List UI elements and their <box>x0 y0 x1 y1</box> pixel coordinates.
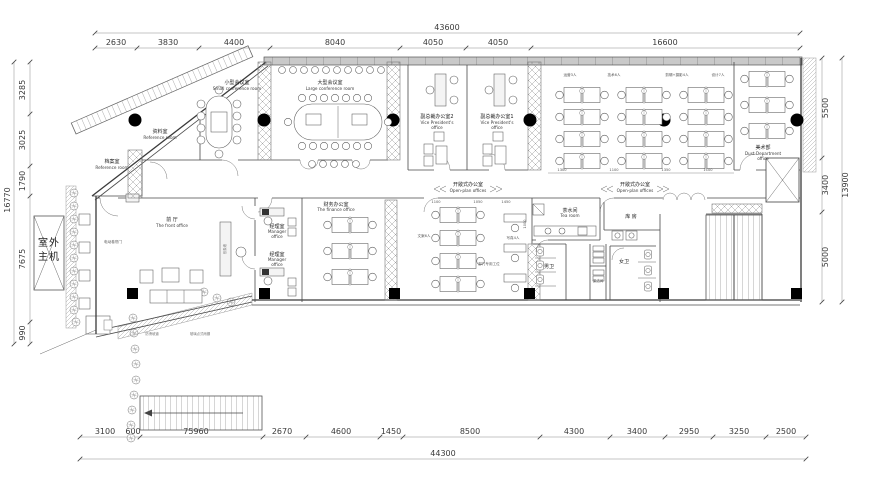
dim-left-3: 1790 <box>18 171 27 191</box>
manager1-en2: office <box>271 234 283 239</box>
dim-bottom-total: 44300 <box>430 449 455 458</box>
archive-cn: 档案室 <box>104 158 119 165</box>
outdoor-unit-label-1: 室外 <box>38 236 60 249</box>
canopy-label: 玻璃点式雨棚 <box>190 331 211 336</box>
male-wc-label: 男卫 <box>544 264 554 270</box>
dim-left-total: 16770 <box>3 187 12 212</box>
east-facade <box>803 58 816 172</box>
vp1-en2: office <box>491 125 503 130</box>
chevron-left-icon <box>434 186 446 192</box>
dim-bot-11: 3250 <box>729 427 749 436</box>
mid-team-label-1: 文案6人 <box>417 233 430 238</box>
dim-right-1: 5500 <box>821 98 830 118</box>
front-cn: 前 厅 <box>166 216 178 223</box>
dim-top-total: 43600 <box>434 23 459 32</box>
dim-top-4: 8040 <box>325 38 345 47</box>
corridor-arcs <box>663 193 705 200</box>
dim-top-5: 4050 <box>423 38 443 47</box>
open-plan-workstations <box>548 86 734 173</box>
microdim-e: 1100 <box>431 200 441 204</box>
art-cn: 美术部 <box>755 144 770 151</box>
dim-top-6: 4050 <box>488 38 508 47</box>
microdim-b: 1100 <box>609 168 619 172</box>
middle-open-desks <box>432 206 526 293</box>
finance-desks <box>324 216 377 286</box>
team-label-1: 运营3人 <box>563 72 576 77</box>
open1-cn: 开敞式办公室 <box>453 181 483 188</box>
dim-bot-5: 4600 <box>331 427 351 436</box>
team-label-3: 剪辑+摄影4人 <box>665 72 689 77</box>
female-wc-label: 女卫 <box>619 258 629 265</box>
dim-top-7: 16600 <box>652 38 677 47</box>
rolling-door-label: 电动卷帘门 <box>104 239 122 244</box>
chevron-right-icon <box>490 186 502 192</box>
microdim-h: 1000 <box>523 219 527 229</box>
large-conf-en: Large conference room <box>306 86 355 91</box>
front-office-furniture: 形象墙 <box>140 222 246 303</box>
open2-en: Open-plan offices <box>617 188 654 193</box>
entry-vestibule <box>86 316 112 334</box>
small-conference-room <box>197 86 241 158</box>
microdim-a: 1300 <box>557 168 567 172</box>
open2-cn: 开敞式办公室 <box>620 181 650 188</box>
dim-left-5: 990 <box>18 325 27 340</box>
outdoor-unit-label-2: 主机 <box>38 250 60 263</box>
reference-en: Reference room <box>143 135 176 140</box>
mid-team-label-2: 写真4人 <box>506 235 519 240</box>
dim-bot-12: 2500 <box>776 427 796 436</box>
microdim-f: 1050 <box>473 200 483 204</box>
large-conf-cn: 大型会议室 <box>317 79 342 86</box>
reference-cn: 资料室 <box>152 128 167 135</box>
microdim-g: 1450 <box>501 200 511 204</box>
doors <box>100 154 756 269</box>
dim-bot-1: 3100 <box>95 427 115 436</box>
dim-top-2: 3830 <box>158 38 178 47</box>
art-dept-desks <box>741 70 794 140</box>
vp2-en2: office <box>431 125 443 130</box>
open-plan-tag-2: 开敞式办公室 Open-plan offices <box>601 181 669 193</box>
tea-room <box>532 198 600 240</box>
open1-en: Open-plan offices <box>450 188 487 193</box>
dim-bot-8: 4300 <box>564 427 584 436</box>
mid-team-label-3: 部门专用工位 <box>478 261 500 266</box>
dim-left-1: 3285 <box>18 80 27 100</box>
open-plan-tag-1: 开敞式办公室 Open-plan offices <box>434 181 502 193</box>
dim-right-2: 3400 <box>821 175 830 195</box>
dim-right-total: 13900 <box>841 172 850 197</box>
team-label-4: 设计7人 <box>711 72 724 77</box>
archive-en: Reference room <box>95 165 128 170</box>
dim-right-3: 5000 <box>821 247 830 267</box>
chevron-left-icon <box>601 186 613 192</box>
microdim-c: 1350 <box>661 168 671 172</box>
small-conf-en: Small conference room <box>213 86 261 91</box>
art-en2: office <box>757 156 769 161</box>
ramp-label: 防滑坡道 <box>145 331 159 336</box>
front-en: The front office <box>155 223 188 228</box>
floor-plan-svg: 43600 2630 3830 4400 8040 4050 4050 1660… <box>0 0 878 488</box>
feature-wall-label: 形象墙 <box>222 243 227 254</box>
small-conf-cn: 小型会议室 <box>224 79 249 86</box>
chevron-right-icon <box>657 186 669 192</box>
vp1-cn: 副总裁办公室1 <box>480 113 513 120</box>
cleaning-label: 保洁间 <box>593 278 604 283</box>
dim-left-2: 3025 <box>18 130 27 150</box>
dim-bot-10: 2950 <box>679 427 699 436</box>
dim-bot-4: 2670 <box>272 427 292 436</box>
finance-en: The finance office <box>316 207 355 212</box>
microdim-d: 1100 <box>703 168 713 172</box>
elevator <box>766 158 799 202</box>
dim-bot-7: 8500 <box>460 427 480 436</box>
storage-label: 库 房 <box>625 213 637 220</box>
floor-plan-canvas: 43600 2630 3830 4400 8040 4050 4050 1660… <box>0 0 878 488</box>
manager2-en2: office <box>271 262 283 267</box>
dim-bot-6: 1450 <box>381 427 401 436</box>
dim-top-3: 4400 <box>224 38 244 47</box>
team-label-2: 技术6人 <box>607 72 620 77</box>
tea-en: Tea room <box>559 213 579 218</box>
vp2-cn: 副总裁办公室2 <box>420 113 453 120</box>
dim-left-4: 7675 <box>18 249 27 269</box>
dim-top-1: 2630 <box>106 38 126 47</box>
wc-block <box>533 202 660 300</box>
dim-bot-9: 3400 <box>627 427 647 436</box>
